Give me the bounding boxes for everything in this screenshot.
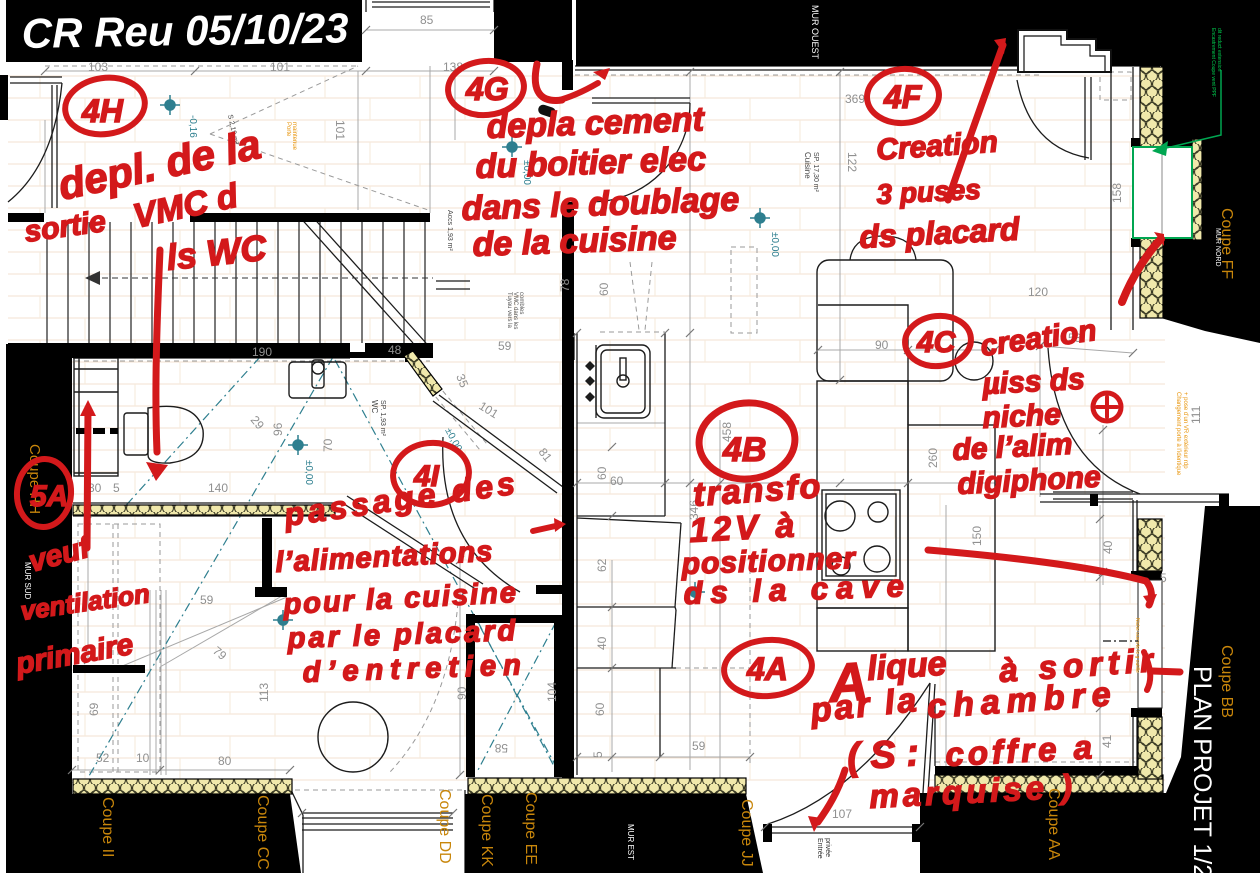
svg-text:103: 103	[88, 60, 108, 74]
svg-text:111: 111	[1189, 405, 1203, 424]
svg-text:MUR NORD: MUR NORD	[1214, 228, 1221, 267]
svg-text:41: 41	[1100, 734, 1114, 748]
svg-text:µiss ds: µiss ds	[981, 363, 1086, 401]
svg-text:Cuisine: Cuisine	[803, 152, 812, 179]
svg-text:5: 5	[591, 751, 605, 758]
svg-text:369: 369	[845, 92, 865, 106]
svg-text:4G: 4G	[465, 71, 509, 107]
svg-text:58: 58	[494, 741, 508, 755]
svg-text:coffre a: coffre a	[944, 728, 1096, 773]
svg-text:Coupe BB: Coupe BB	[1218, 645, 1235, 718]
svg-text:+ pose d’un VR extérieur rdp: + pose d’un VR extérieur rdp	[1182, 392, 1188, 469]
svg-text:de la cuisine: de la cuisine	[472, 219, 677, 264]
svg-text:122: 122	[845, 152, 859, 172]
svg-text:59: 59	[200, 593, 214, 607]
svg-text:70: 70	[321, 438, 335, 452]
svg-text:48: 48	[388, 343, 402, 357]
svg-text:104: 104	[545, 682, 559, 702]
svg-text:40: 40	[1101, 540, 1115, 554]
svg-text:62: 62	[595, 558, 609, 572]
svg-text:69: 69	[87, 702, 101, 716]
svg-text:4B: 4B	[722, 431, 766, 469]
svg-text:dit reduct extension: dit reduct extension	[1216, 28, 1222, 72]
svg-text:MUR OUEST: MUR OUEST	[810, 5, 820, 60]
svg-text:Coupe II: Coupe II	[99, 797, 116, 857]
svg-text:5: 5	[113, 481, 120, 495]
svg-text:Entrée: Entrée	[816, 838, 823, 859]
svg-text:de l’alim: de l’alim	[952, 428, 1074, 467]
svg-text:59: 59	[498, 339, 512, 353]
svg-text:96: 96	[271, 422, 285, 436]
svg-text:maintenue: maintenue	[291, 122, 297, 151]
svg-text:10: 10	[136, 751, 150, 765]
svg-text:101: 101	[333, 120, 347, 140]
svg-text:140: 140	[208, 481, 228, 495]
svg-text:60: 60	[597, 282, 611, 296]
svg-text:±0,00: ±0,00	[303, 460, 314, 485]
svg-text:101: 101	[270, 60, 290, 74]
svg-text:4F: 4F	[883, 79, 923, 115]
svg-text:40: 40	[595, 636, 609, 650]
svg-text:Coupe KK: Coupe KK	[478, 794, 495, 867]
svg-text:Coupe EE: Coupe EE	[522, 792, 539, 865]
svg-text:combles: combles	[518, 292, 524, 314]
svg-text:privée: privée	[824, 838, 831, 857]
svg-text:12V à: 12V à	[688, 506, 799, 550]
svg-text:78: 78	[558, 278, 572, 292]
svg-text:5A: 5A	[30, 480, 68, 513]
svg-text:150: 150	[970, 526, 984, 546]
svg-text:4A: 4A	[746, 651, 788, 687]
svg-text:PLAN PROJET 1/20ème: PLAN PROJET 1/20ème	[1188, 666, 1216, 873]
svg-text:du boitier elec: du boitier elec	[475, 140, 707, 186]
svg-text:90: 90	[875, 338, 889, 352]
svg-text:WC: WC	[370, 400, 379, 414]
svg-text:90: 90	[455, 686, 469, 700]
svg-text:158: 158	[1110, 183, 1124, 203]
svg-text:190: 190	[252, 345, 272, 359]
svg-text:Porte: Porte	[285, 122, 291, 137]
svg-text:107: 107	[832, 807, 852, 821]
svg-text:±0,00: ±0,00	[769, 232, 780, 257]
svg-text:Encastrement Coupe vent PPF: Encastrement Coupe vent PPF	[1210, 28, 1216, 97]
svg-text:Accs 1,93 m²: Accs 1,93 m²	[446, 210, 453, 252]
svg-text:Changement porte à l’identiqu: Changement porte à l’identique	[1175, 392, 1181, 476]
svg-text:Coupe JJ: Coupe JJ	[738, 799, 755, 867]
svg-text:59: 59	[692, 739, 706, 753]
svg-text:3 puses: 3 puses	[876, 174, 982, 210]
svg-text:52: 52	[96, 751, 110, 765]
svg-text:60: 60	[593, 702, 607, 716]
svg-text:Coupe DD: Coupe DD	[436, 789, 453, 864]
svg-text:depla cement: depla cement	[486, 100, 706, 146]
svg-text:VMC dans les: VMC dans les	[512, 292, 518, 329]
svg-text:SP. 17,30 m²: SP. 17,30 m²	[812, 152, 819, 193]
svg-text:( S :: ( S :	[846, 732, 921, 779]
svg-text:SP. 1,93 m²: SP. 1,93 m²	[379, 400, 386, 437]
svg-text:4H: 4H	[81, 93, 124, 129]
svg-text:60: 60	[595, 466, 609, 480]
svg-text:80: 80	[218, 754, 232, 768]
svg-text:260: 260	[926, 448, 940, 468]
svg-text:4C: 4C	[916, 326, 957, 359]
svg-text:60: 60	[610, 474, 624, 488]
svg-text:MUR EST: MUR EST	[626, 824, 635, 860]
svg-text:Tuyau vers la: Tuyau vers la	[506, 292, 512, 328]
svg-text:CR Reu 05/10/23: CR Reu 05/10/23	[21, 4, 349, 57]
svg-text:85: 85	[420, 13, 434, 27]
svg-text:113: 113	[257, 683, 271, 702]
svg-text:Coupe CC: Coupe CC	[254, 795, 271, 870]
svg-text:5: 5	[1160, 571, 1167, 585]
svg-text:120: 120	[1028, 285, 1048, 299]
